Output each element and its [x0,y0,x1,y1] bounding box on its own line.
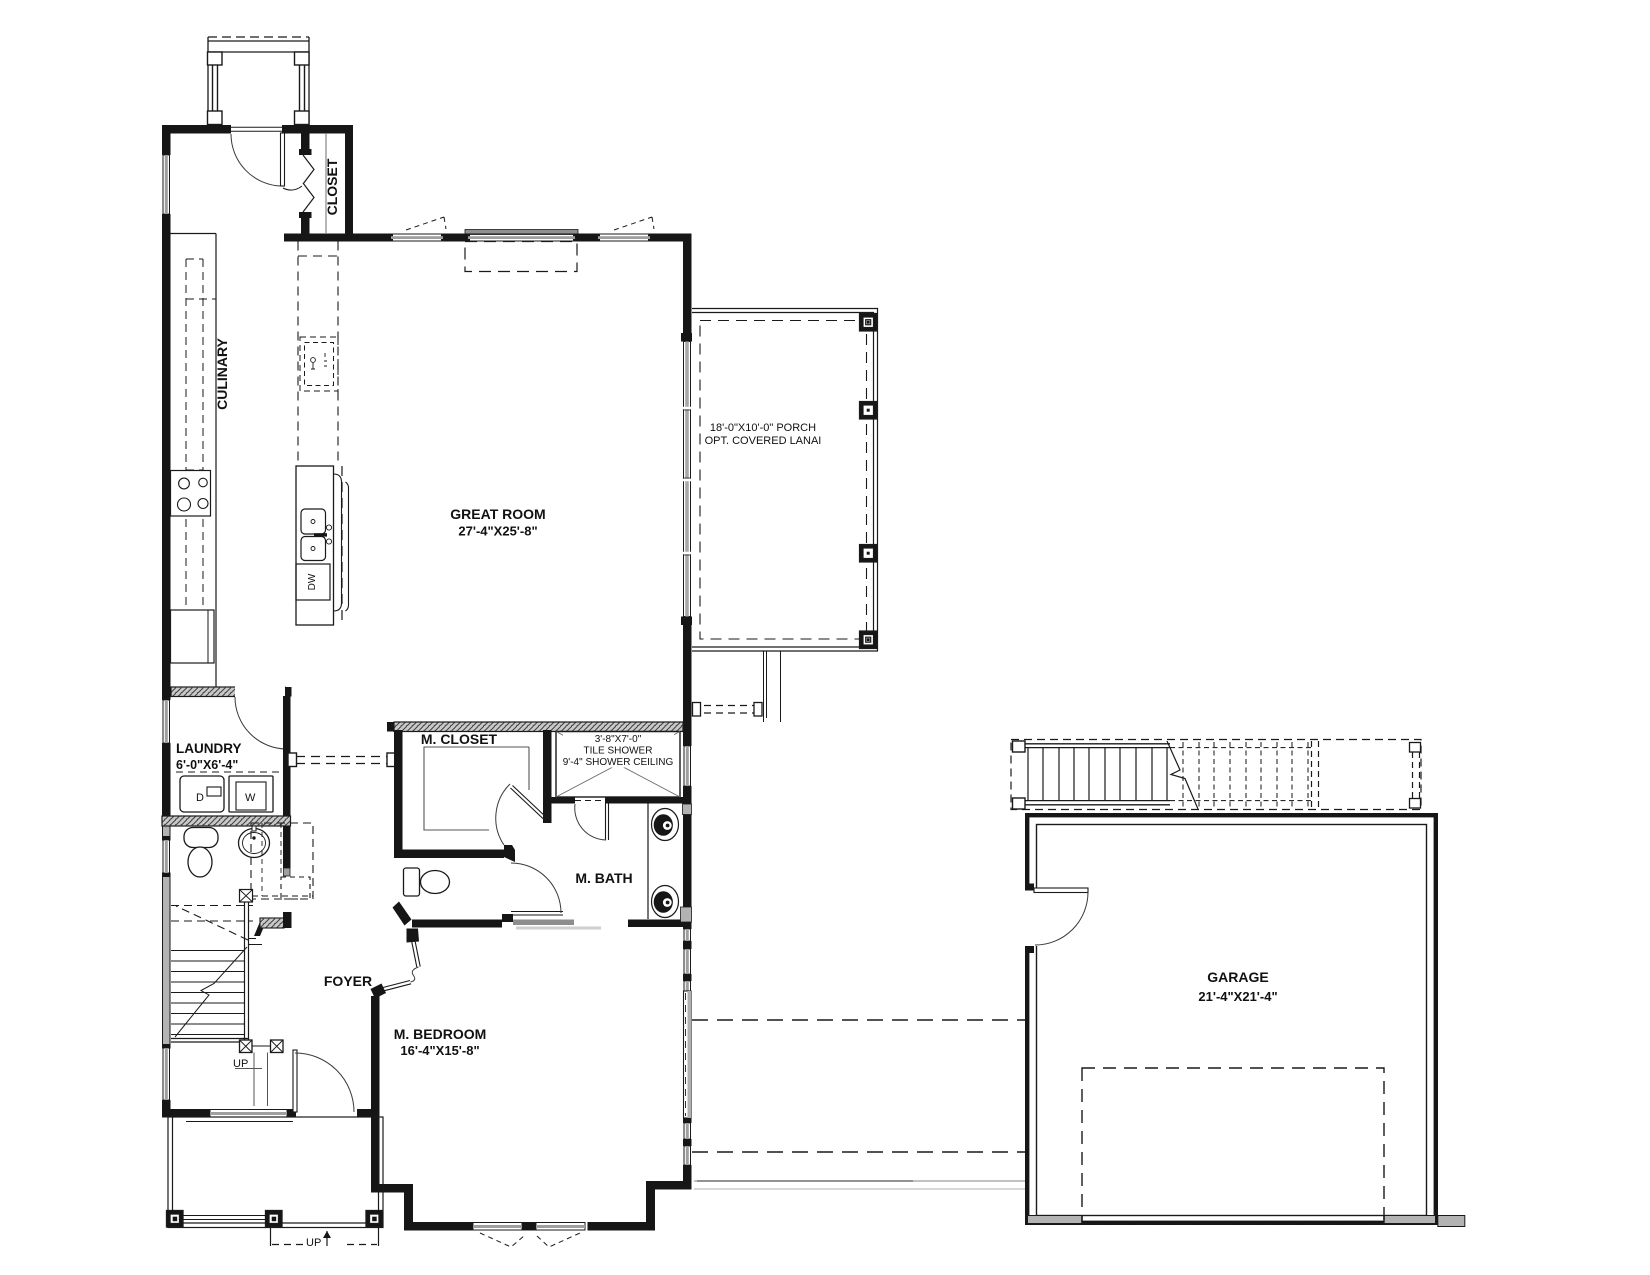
svg-text:M. BATH: M. BATH [575,870,632,886]
svg-text:21'-4"X21'-4": 21'-4"X21'-4" [1198,989,1277,1004]
svg-text:3'-8"X7'-0": 3'-8"X7'-0" [595,734,642,745]
svg-text:UP: UP [233,1058,248,1070]
svg-text:FOYER: FOYER [324,973,372,989]
svg-text:M. BEDROOM: M. BEDROOM [394,1026,487,1042]
svg-text:LAUNDRY: LAUNDRY [176,741,242,756]
svg-text:16'-4"X15'-8": 16'-4"X15'-8" [400,1043,479,1058]
svg-text:CULINARY: CULINARY [214,337,230,409]
svg-text:UP: UP [306,1237,321,1249]
svg-text:M. CLOSET: M. CLOSET [421,731,498,747]
svg-text:OPT. COVERED LANAI: OPT. COVERED LANAI [705,435,822,447]
svg-text:CLOSET: CLOSET [324,158,340,215]
svg-text:18'-0"X10'-0" PORCH: 18'-0"X10'-0" PORCH [710,422,816,434]
svg-text:9'-4" SHOWER CEILING: 9'-4" SHOWER CEILING [563,757,674,768]
svg-text:GARAGE: GARAGE [1207,969,1268,985]
svg-text:GREAT ROOM: GREAT ROOM [450,506,545,522]
svg-text:D: D [196,792,204,804]
svg-text:6'-0"X6'-4": 6'-0"X6'-4" [176,758,238,772]
svg-text:W: W [245,792,256,804]
svg-text:DW: DW [307,573,318,590]
svg-text:TILE SHOWER: TILE SHOWER [584,746,653,757]
svg-text:27'-4"X25'-8": 27'-4"X25'-8" [458,524,537,539]
